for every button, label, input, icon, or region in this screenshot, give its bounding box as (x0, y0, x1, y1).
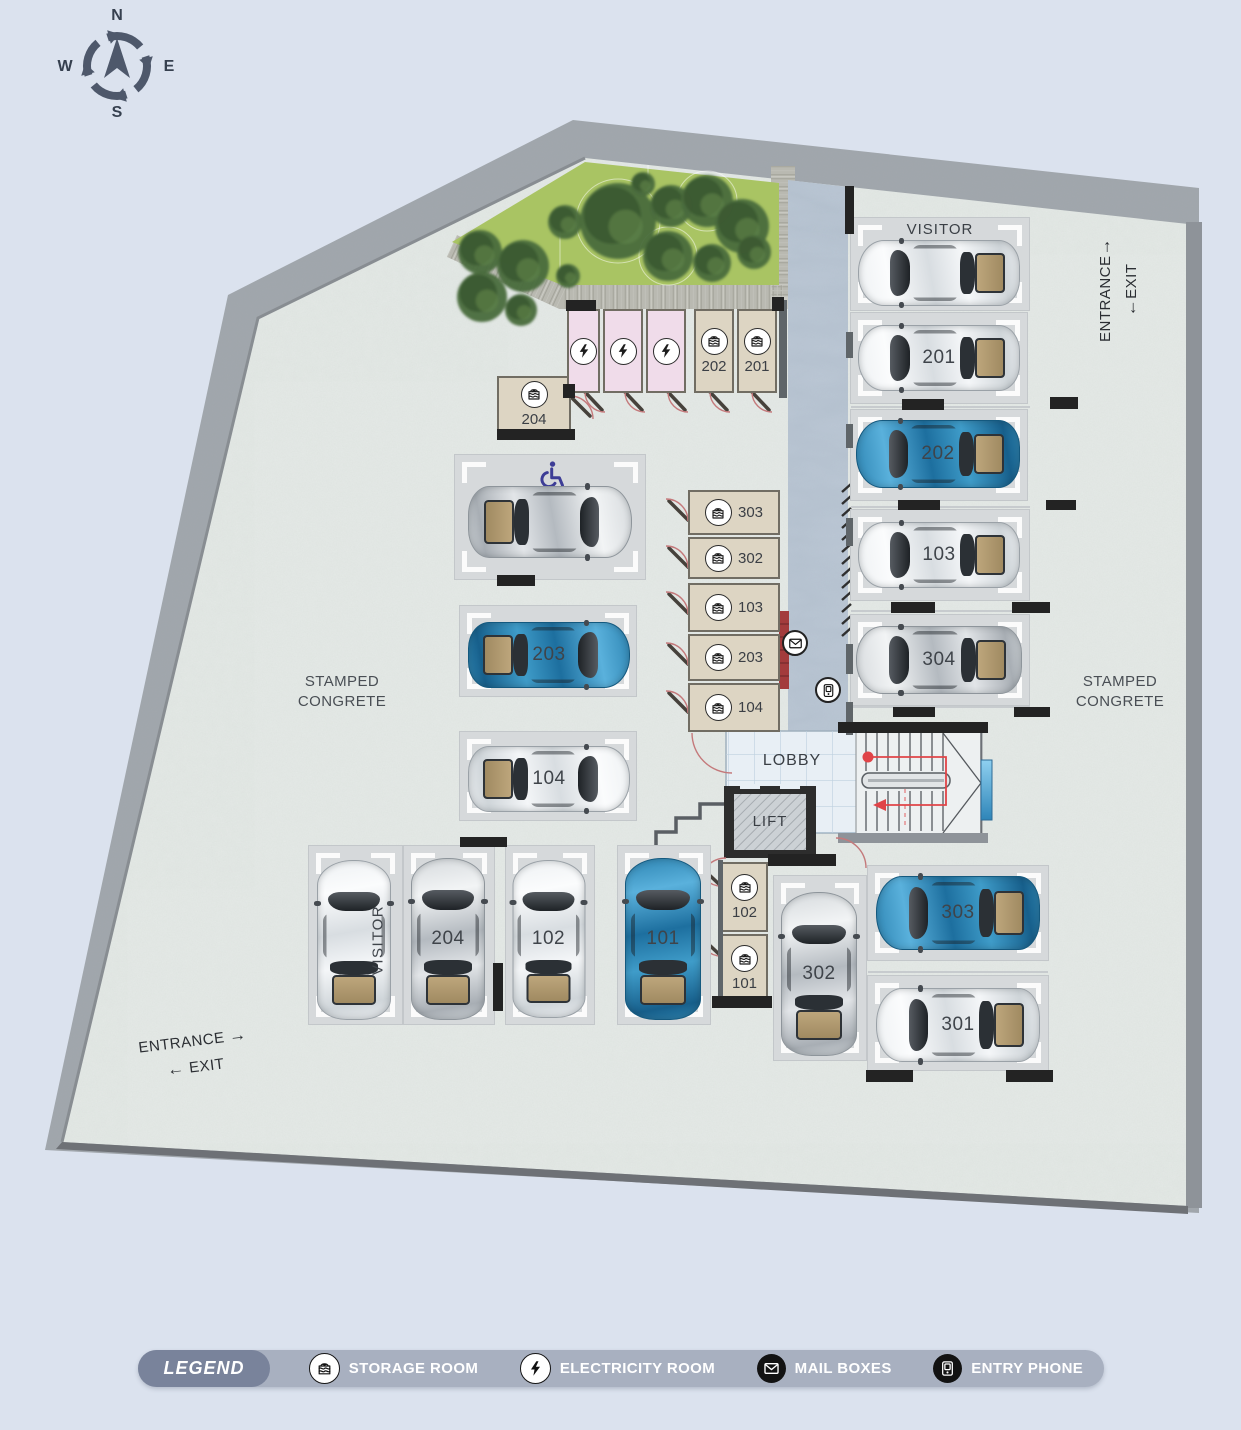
car-mirror (898, 624, 903, 630)
electricity-icon (610, 338, 637, 365)
exit-label: EXIT (188, 1055, 225, 1076)
car-rear-deck (975, 535, 1005, 575)
car-windshield (523, 892, 574, 911)
car-rear-deck (527, 974, 571, 1003)
tree (517, 258, 540, 281)
car-rear-deck (640, 975, 686, 1005)
storage-icon (731, 945, 758, 972)
legend-item-label: ELECTRICITY ROOM (560, 1360, 715, 1377)
entrance-arrow-icon: → (1095, 238, 1114, 256)
wall-segment (1050, 397, 1078, 409)
entrance-label: ENTRANCE (1097, 256, 1114, 343)
wall-segment (846, 332, 853, 358)
wall-segment (1046, 500, 1076, 510)
wall-segment (846, 424, 853, 448)
lift-label: LIFT (724, 813, 816, 830)
car-mirror (314, 901, 321, 906)
car-mirror (778, 934, 785, 939)
wall-segment (772, 297, 784, 311)
car-windshield (890, 250, 909, 296)
compass-rose: N E S W (52, 4, 182, 124)
exit-label: EXIT (1123, 264, 1140, 299)
wall-segment (898, 500, 940, 510)
storage-room-303: 303 (688, 490, 780, 535)
car-mirror (899, 520, 904, 526)
car-number-label: 304 (922, 649, 955, 671)
wall-segment (891, 602, 935, 613)
wall-segment (1014, 707, 1050, 717)
car-rear-window (639, 960, 688, 975)
car-rear-deck (426, 975, 470, 1005)
surface-right-line2: CONGRETE (1046, 692, 1194, 712)
storage-icon (701, 328, 728, 355)
storage-room-number: 104 (738, 699, 763, 716)
car-windshield (889, 636, 909, 684)
car-number-label: VISITOR (370, 905, 387, 975)
car-rear-deck (975, 253, 1005, 293)
electricity-room-2 (603, 309, 643, 393)
compass-north: N (111, 7, 123, 24)
mailboxes-icon (782, 630, 808, 656)
car-windshield (422, 890, 474, 909)
car-rear-window (961, 638, 976, 682)
storage-room-102: 102 (721, 862, 768, 932)
wall-segment (493, 963, 503, 1011)
car-mirror (584, 684, 589, 690)
car-mirror (918, 985, 923, 992)
car-rear-deck (976, 640, 1007, 681)
car-mirror (853, 934, 860, 939)
tree (609, 210, 643, 244)
compass-needle-icon (104, 38, 130, 78)
stall-corner-bracket (462, 462, 486, 483)
wall-segment (497, 575, 535, 586)
car-rear-window (960, 252, 975, 294)
car-mirror (918, 1058, 923, 1065)
stall-label: VISITOR (851, 221, 1029, 238)
car-number-label: 204 (431, 928, 464, 950)
surface-right-line1: STAMPED (1046, 672, 1194, 692)
legend-item-storage: STORAGE ROOM (309, 1353, 479, 1384)
surface-label-right: STAMPED CONGRETE (1046, 672, 1194, 711)
storage-room-number: 303 (738, 504, 763, 521)
car-mirror (584, 808, 589, 814)
storage-icon (705, 499, 732, 526)
car-rear-window (424, 960, 471, 975)
wall-segment (460, 837, 507, 847)
storage-room-number: 101 (732, 975, 757, 992)
car-rear-deck (796, 1010, 842, 1040)
car-rear-window (795, 995, 844, 1010)
wall-segment (846, 518, 853, 546)
mailboxes-icon (757, 1354, 786, 1383)
storage-room-104: 104 (688, 683, 780, 732)
car-rear-deck (974, 434, 1004, 475)
car-mirror (387, 901, 394, 906)
storage-room-number: 203 (738, 649, 763, 666)
storage-room-201: 201 (737, 309, 777, 393)
car-handicap (468, 486, 632, 558)
car-windshield (792, 925, 845, 945)
car-rear-deck (994, 891, 1024, 935)
car-visitor-top (858, 240, 1020, 306)
car-number-label: 104 (532, 768, 565, 790)
storage-room-101: 101 (721, 934, 768, 1003)
electricity-icon (653, 338, 680, 365)
car-mirror (898, 690, 903, 696)
tree (475, 245, 495, 265)
storage-room-202: 202 (694, 309, 734, 393)
car-rear-window (960, 337, 975, 379)
exit-arrow-icon: ← (1121, 299, 1140, 317)
legend-item-electricity: ELECTRICITY ROOM (520, 1353, 715, 1384)
tree (476, 290, 499, 313)
compass-west: W (57, 58, 73, 75)
wall-segment (893, 707, 935, 717)
car-mirror (481, 899, 488, 904)
legend-item-mailboxes: MAIL BOXES (757, 1354, 892, 1383)
wall-segment (768, 854, 836, 866)
car-windshield (580, 497, 600, 547)
surface-left-line2: CONGRETE (268, 692, 416, 712)
car-mirror (899, 238, 904, 244)
car-rear-window (979, 889, 994, 936)
storage-icon (705, 594, 732, 621)
tree (750, 247, 765, 262)
legend-item-label: ENTRY PHONE (971, 1360, 1083, 1377)
car-mirror (918, 873, 923, 880)
storage-room-103: 103 (688, 583, 780, 632)
car-mirror (584, 744, 589, 750)
car-windshield (909, 887, 929, 939)
car-windshield (890, 335, 909, 381)
tree (517, 305, 531, 319)
site-plan-base (0, 0, 1241, 1430)
car-number-label: 301 (941, 1014, 974, 1036)
entrance-exit-right: ENTRANCE→ ←EXIT (1092, 220, 1132, 360)
legend-items: STORAGE ROOM ELECTRICITY ROOM MAIL BOXES… (288, 1353, 1104, 1384)
compass-east: E (164, 58, 175, 75)
legend-item-entry-phone: ENTRY PHONE (933, 1354, 1083, 1383)
wall-segment (838, 722, 988, 733)
car-number-label: 303 (941, 902, 974, 924)
storage-icon (521, 381, 548, 408)
electricity-icon (570, 338, 597, 365)
car-windshield (636, 890, 689, 909)
legend-item-label: MAIL BOXES (795, 1360, 892, 1377)
car-mirror (581, 900, 588, 905)
storage-icon (705, 644, 732, 671)
car-rear-window (959, 432, 974, 476)
car-roof (529, 492, 580, 553)
car-windshield (578, 756, 597, 802)
wall-segment (497, 429, 575, 440)
storage-room-number: 103 (738, 599, 763, 616)
car-number-label: 103 (922, 544, 955, 566)
car-windshield (889, 430, 909, 478)
car-mirror (899, 323, 904, 329)
legend-bar: LEGEND STORAGE ROOM ELECTRICITY ROOM MAI… (138, 1350, 1104, 1387)
parking-floor-plan: N E S W LOBBY LIFT STAMPED CONGRETE STAM… (0, 0, 1241, 1430)
wall-segment (1006, 1070, 1053, 1082)
storage-icon (705, 545, 732, 572)
storage-room-number: 302 (738, 550, 763, 567)
wall-segment (712, 996, 772, 1008)
car-number-label: 102 (532, 928, 565, 950)
entry-phone-icon (933, 1354, 962, 1383)
car-number-label: 202 (921, 443, 954, 465)
compass-south: S (112, 104, 123, 121)
wall-segment (779, 300, 787, 398)
car-rear-deck (994, 1003, 1024, 1047)
storage-icon (731, 874, 758, 901)
lobby-label: LOBBY (726, 752, 858, 770)
storage-icon (744, 328, 771, 355)
car-rear-deck (332, 975, 376, 1005)
car-mirror (898, 418, 903, 424)
wall-segment (563, 384, 575, 398)
car-mirror (585, 483, 590, 489)
storage-room-203: 203 (688, 634, 780, 681)
car-rear-window (514, 499, 529, 545)
car-number-label: 201 (922, 347, 955, 369)
exit-arrow-icon: ← (166, 1058, 186, 1079)
car-rear-window (525, 960, 572, 974)
car-mirror (585, 554, 590, 560)
wall-segment (902, 399, 944, 410)
car-rear-deck (483, 635, 513, 675)
car-number-label: 101 (646, 928, 679, 950)
electricity-room-icon (520, 1353, 551, 1384)
car-rear-window (513, 634, 528, 676)
storage-room-number: 202 (701, 358, 726, 375)
storage-room-number: 201 (744, 358, 769, 375)
entry-phone-icon (815, 677, 841, 703)
wall-segment (566, 300, 596, 311)
car-rear-deck (483, 759, 513, 799)
surface-label-left: STAMPED CONGRETE (268, 672, 416, 711)
storage-room-number: 102 (732, 904, 757, 921)
surface-left-line1: STAMPED (268, 672, 416, 692)
legend-title: LEGEND (138, 1350, 270, 1387)
car-top-view (468, 486, 632, 558)
car-number-label: 302 (802, 963, 835, 985)
stall-corner-bracket (614, 462, 638, 483)
storage-room-204: 204 (497, 376, 571, 432)
electricity-room-1 (567, 309, 600, 393)
car-mirror (697, 899, 704, 904)
entrance-arrow-icon: → (228, 1025, 248, 1046)
car-rear-window (513, 758, 528, 800)
storage-room-number: 204 (521, 411, 546, 428)
car-rear-deck (484, 500, 514, 543)
car-rear-window (960, 534, 975, 576)
electricity-room-3 (646, 309, 686, 393)
wall-segment (846, 644, 853, 674)
tree (707, 257, 724, 274)
tree (662, 249, 685, 272)
wall-segment (1012, 602, 1050, 613)
tree (640, 180, 651, 191)
car-windshield (909, 999, 929, 1051)
tree (565, 272, 576, 283)
car-mirror (584, 620, 589, 626)
car-number-label: 203 (532, 644, 565, 666)
storage-icon (705, 694, 732, 721)
storage-room-302: 302 (688, 537, 780, 579)
car-roof (910, 245, 960, 300)
wall-segment (718, 860, 723, 998)
wall-segment (845, 186, 854, 234)
car-mirror (918, 946, 923, 953)
wall-segment (866, 1070, 913, 1082)
car-windshield (578, 632, 597, 678)
car-rear-window (979, 1001, 994, 1048)
storage-room-icon (309, 1353, 340, 1384)
legend-item-label: STORAGE ROOM (349, 1360, 479, 1377)
car-windshield (890, 532, 909, 578)
car-rear-deck (975, 338, 1005, 378)
car-top-view (858, 240, 1020, 306)
tree (561, 217, 576, 232)
